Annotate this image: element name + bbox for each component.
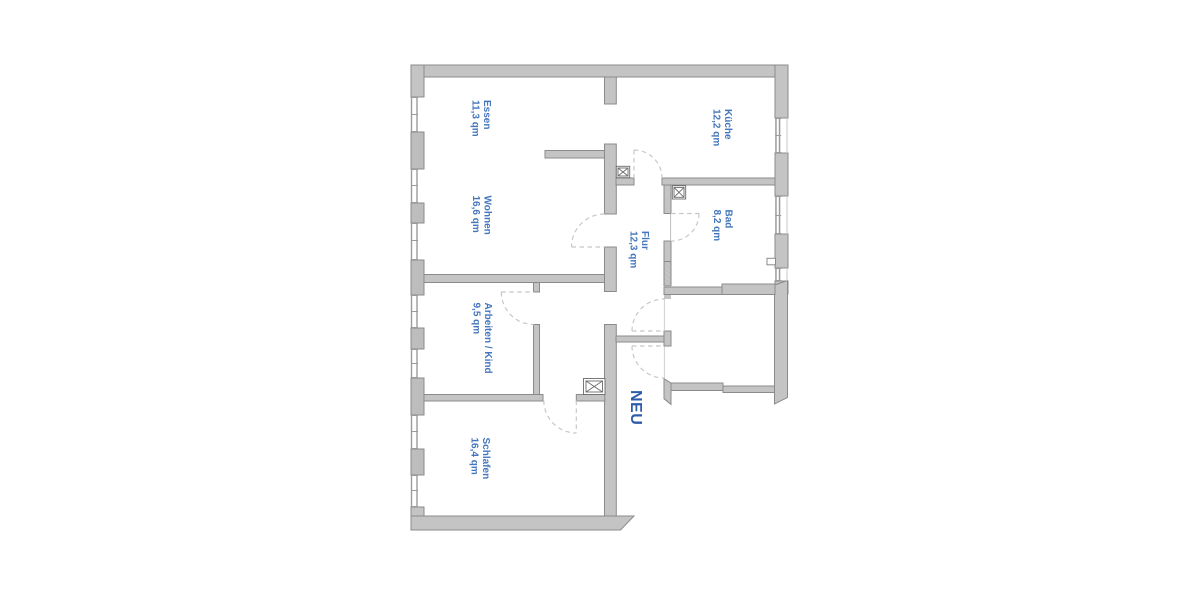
- svg-text:Bad8,2 qm: Bad8,2 qm: [711, 210, 734, 242]
- svg-text:Wohnen16,6 qm: Wohnen16,6 qm: [470, 196, 493, 235]
- svg-text:Essen11,3 qm: Essen11,3 qm: [470, 100, 493, 137]
- svg-text:Küche12,2 qm: Küche12,2 qm: [711, 109, 734, 146]
- svg-text:Flur12,3 qm: Flur12,3 qm: [628, 231, 651, 268]
- svg-text:Schlafen16,4 qm: Schlafen16,4 qm: [469, 438, 492, 480]
- svg-text:Arbeiten / Kind9,5 qm: Arbeiten / Kind9,5 qm: [471, 303, 494, 374]
- svg-text:NEU: NEU: [627, 390, 644, 425]
